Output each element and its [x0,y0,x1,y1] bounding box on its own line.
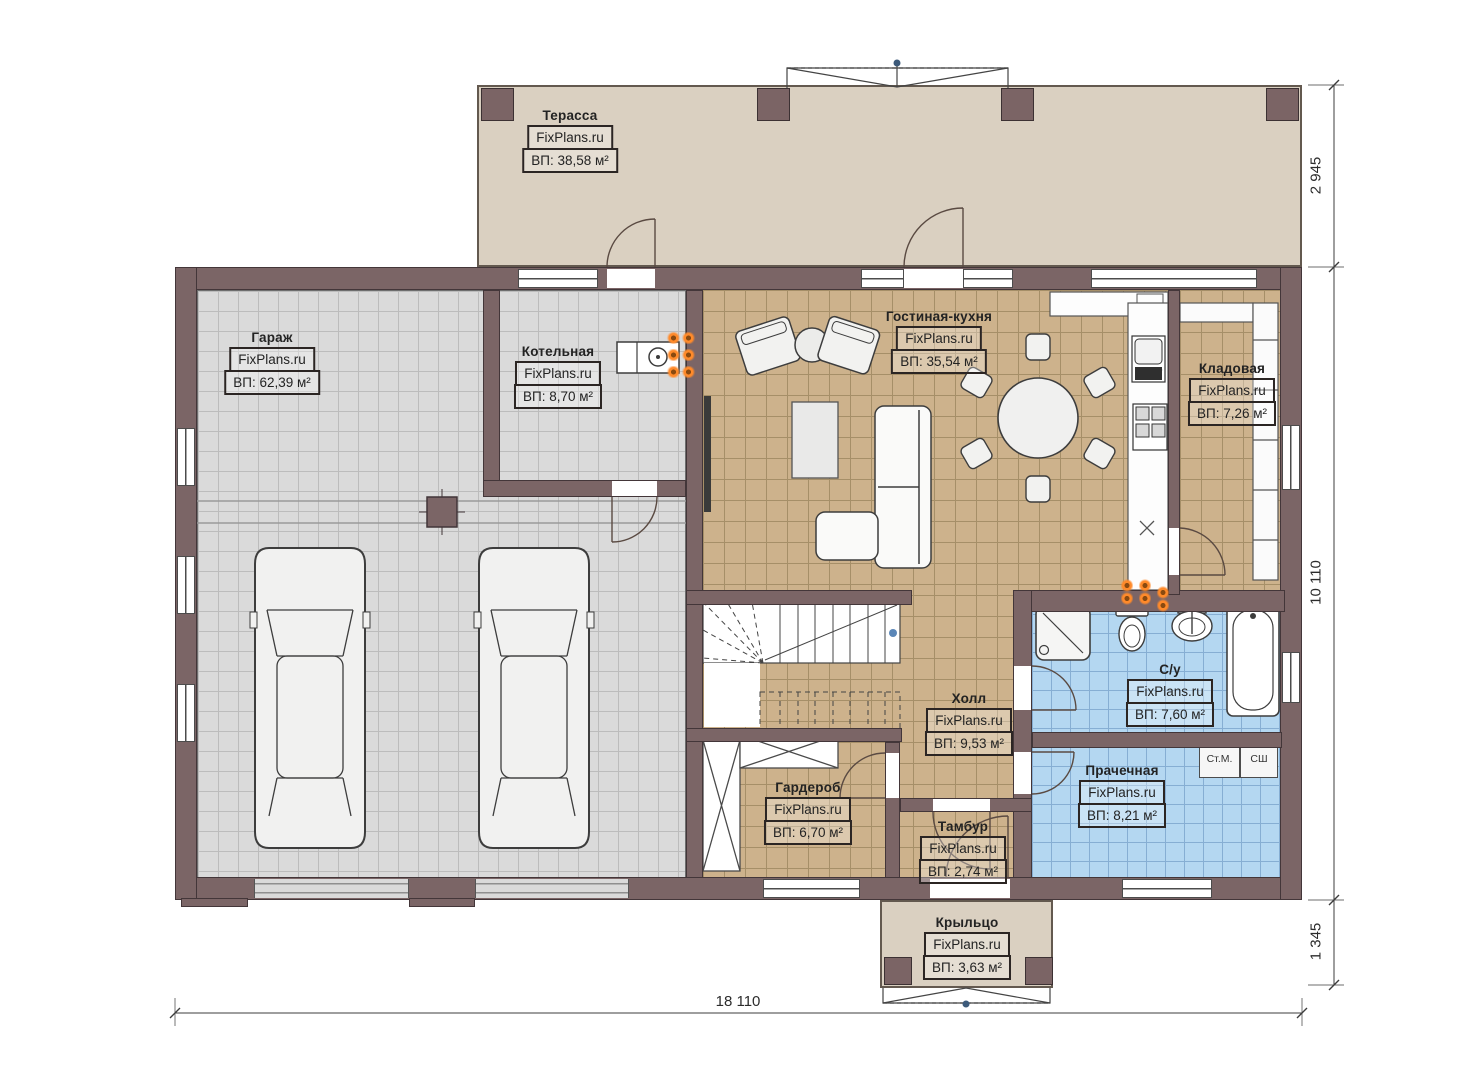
dimension-right-bottom: 1 345 [1308,902,1325,982]
window [1282,425,1300,490]
room-label-bathroom: С/у FixPlans.ru ВП: 7,60 м² [1126,662,1214,727]
watermark: FixPlans.ru [515,361,601,386]
watermark: FixPlans.ru [924,932,1010,957]
wall [1032,732,1282,748]
window [1122,879,1212,898]
window [177,684,195,742]
door-opening [904,269,963,288]
window [1091,269,1257,288]
pantry-floor [1180,290,1280,595]
room-area: ВП: 9,53 м² [925,731,1013,756]
washing-machine-label: Ст.М. [1207,753,1233,765]
watermark: FixPlans.ru [527,125,613,150]
room-area: ВП: 38,58 м² [522,148,618,173]
room-name: Прачечная [1085,763,1158,778]
porch-steps-icon [883,988,1050,1008]
heating-riser-icon [1139,579,1151,605]
room-name: Котельная [522,344,594,359]
terrace-steps-icon [787,60,1008,89]
dimension-right-middle: 10 110 [1308,543,1325,623]
wall-pier [181,898,248,907]
heating-riser-icon [1121,579,1133,605]
window [861,269,904,288]
room-name: Кладовая [1199,361,1265,376]
room-label-boiler: Котельная FixPlans.ru ВП: 8,70 м² [514,344,602,409]
wall [686,590,912,605]
room-label-wardrobe: Гардероб FixPlans.ru ВП: 6,70 м² [764,780,852,845]
room-label-terrace: Терасса FixPlans.ru ВП: 38,58 м² [522,108,618,173]
room-area: ВП: 3,63 м² [923,955,1011,980]
room-label-hall: Холл FixPlans.ru ВП: 9,53 м² [925,691,1013,756]
door-opening [886,753,899,798]
dimension-right-top: 2 945 [1308,136,1325,216]
window [177,428,195,486]
room-name: Гардероб [775,780,840,795]
door-opening [612,481,657,496]
terrace-post [1266,88,1299,121]
room-label-living-kitchen: Гостиная-кухня FixPlans.ru ВП: 35,54 м² [886,309,992,374]
room-area: ВП: 62,39 м² [224,370,320,395]
room-area: ВП: 8,70 м² [514,384,602,409]
garage-door-opening [254,879,409,898]
room-area: ВП: 35,54 м² [891,349,987,374]
room-area: ВП: 8,21 м² [1078,803,1166,828]
window [177,556,195,614]
door-opening [1014,666,1031,710]
dryer-label: СШ [1250,753,1267,765]
porch-post [1025,957,1053,985]
wall [1013,590,1032,878]
room-name: С/у [1159,662,1181,677]
room-label-vestibule: Тамбур FixPlans.ru ВП: 2,74 м² [919,819,1007,884]
wall [686,728,902,742]
window [763,879,860,898]
room-area: ВП: 7,60 м² [1126,702,1214,727]
room-name: Гараж [251,330,292,345]
dimension-bottom: 18 110 [688,993,788,1010]
watermark: FixPlans.ru [1079,780,1165,805]
watermark: FixPlans.ru [1189,378,1275,403]
terrace-post [757,88,790,121]
heating-riser-icon [1157,586,1169,612]
room-area: ВП: 2,74 м² [919,859,1007,884]
terrace-post [481,88,514,121]
heating-riser-icon [666,366,696,378]
wall [483,290,500,482]
watermark: FixPlans.ru [229,347,315,372]
door-opening [933,799,990,811]
watermark: FixPlans.ru [896,326,982,351]
room-name: Терасса [543,108,598,123]
room-name: Крыльцо [936,915,999,930]
heating-riser-icon [666,349,696,361]
room-area: ВП: 6,70 м² [764,820,852,845]
door-opening [1014,752,1031,794]
floor-plan: Ст.М. СШ [0,0,1473,1080]
terrace-post [1001,88,1034,121]
room-name: Тамбур [938,819,988,834]
room-name: Холл [952,691,987,706]
wall-pier [409,898,475,907]
room-label-porch: Крыльцо FixPlans.ru ВП: 3,63 м² [923,915,1011,980]
room-label-laundry: Прачечная FixPlans.ru ВП: 8,21 м² [1078,763,1166,828]
room-label-garage: Гараж FixPlans.ru ВП: 62,39 м² [224,330,320,395]
garage-door-opening [475,879,629,898]
wall [686,290,703,878]
door-opening [1169,528,1179,575]
room-label-pantry: Кладовая FixPlans.ru ВП: 7,26 м² [1188,361,1276,426]
room-name: Гостиная-кухня [886,309,992,324]
heating-riser-icon [666,332,696,344]
door-opening [607,269,655,288]
watermark: FixPlans.ru [765,797,851,822]
watermark: FixPlans.ru [926,708,1012,733]
watermark: FixPlans.ru [920,836,1006,861]
wall [1280,267,1302,900]
watermark: FixPlans.ru [1127,679,1213,704]
window [1282,652,1300,703]
porch-post [884,957,912,985]
window [963,269,1013,288]
window [518,269,598,288]
room-area: ВП: 7,26 м² [1188,401,1276,426]
